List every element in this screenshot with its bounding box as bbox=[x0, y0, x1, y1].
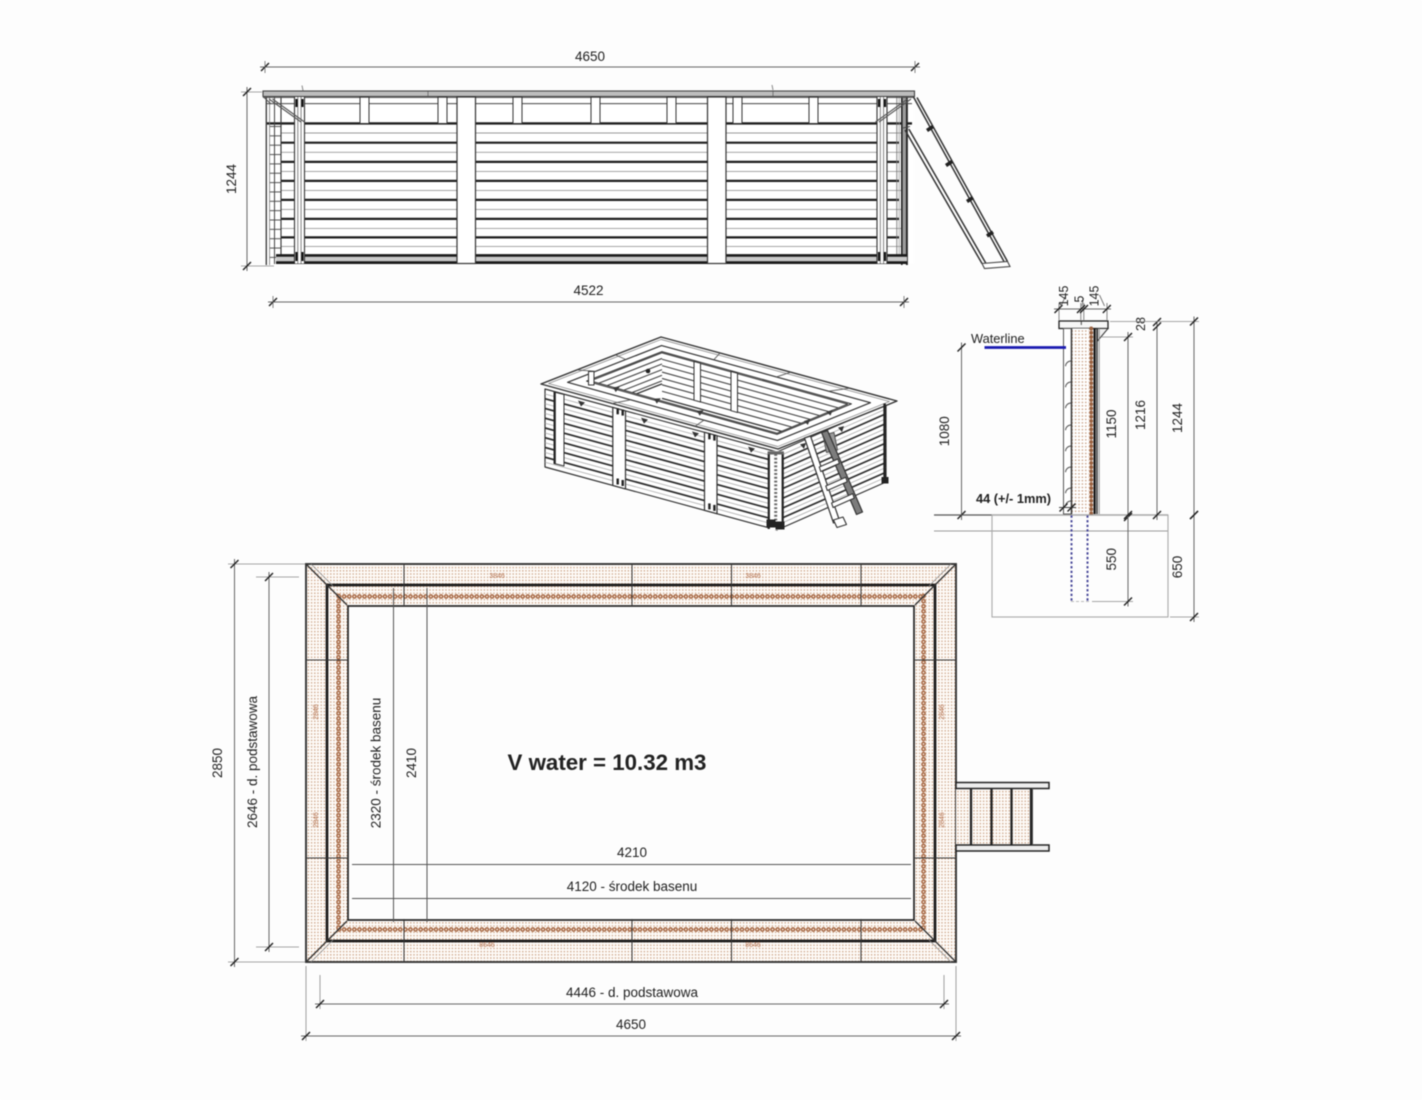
svg-text:2320 - środek basenu: 2320 - środek basenu bbox=[369, 698, 384, 829]
svg-text:145: 145 bbox=[1057, 286, 1071, 307]
svg-text:4650: 4650 bbox=[616, 1017, 646, 1032]
svg-text:2846: 2846 bbox=[313, 812, 320, 828]
svg-text:1080: 1080 bbox=[937, 416, 952, 446]
svg-text:Waterline: Waterline bbox=[971, 331, 1025, 346]
svg-text:4210: 4210 bbox=[617, 845, 647, 860]
svg-text:4650: 4650 bbox=[575, 49, 605, 64]
svg-text:1244: 1244 bbox=[224, 163, 239, 194]
svg-text:28: 28 bbox=[1134, 317, 1148, 331]
svg-text:2410: 2410 bbox=[404, 748, 419, 778]
svg-text:3846: 3846 bbox=[745, 573, 761, 580]
svg-text:8646: 8646 bbox=[479, 942, 495, 949]
svg-text:1150: 1150 bbox=[1104, 409, 1119, 438]
svg-text:2846: 2846 bbox=[313, 704, 320, 720]
svg-text:2846: 2846 bbox=[939, 812, 946, 828]
svg-text:5: 5 bbox=[1073, 295, 1087, 302]
svg-text:650: 650 bbox=[1170, 556, 1185, 579]
svg-text:2850: 2850 bbox=[210, 748, 225, 778]
svg-text:8646: 8646 bbox=[745, 942, 761, 949]
svg-text:2646 - d. podstawowa: 2646 - d. podstawowa bbox=[245, 695, 260, 828]
svg-text:550: 550 bbox=[1104, 548, 1119, 571]
svg-text:2846: 2846 bbox=[939, 704, 946, 720]
svg-text:1244: 1244 bbox=[1170, 402, 1185, 433]
svg-text:V water = 10.32 m3: V water = 10.32 m3 bbox=[508, 750, 707, 775]
svg-text:145: 145 bbox=[1088, 286, 1102, 307]
svg-text:4522: 4522 bbox=[573, 283, 603, 298]
svg-text:44 (+/- 1mm): 44 (+/- 1mm) bbox=[976, 491, 1051, 506]
svg-text:4446 - d. podstawowa: 4446 - d. podstawowa bbox=[566, 985, 699, 1000]
svg-text:4120 - środek basenu: 4120 - środek basenu bbox=[567, 879, 698, 894]
svg-text:1216: 1216 bbox=[1133, 400, 1148, 430]
svg-text:3846: 3846 bbox=[489, 573, 505, 580]
